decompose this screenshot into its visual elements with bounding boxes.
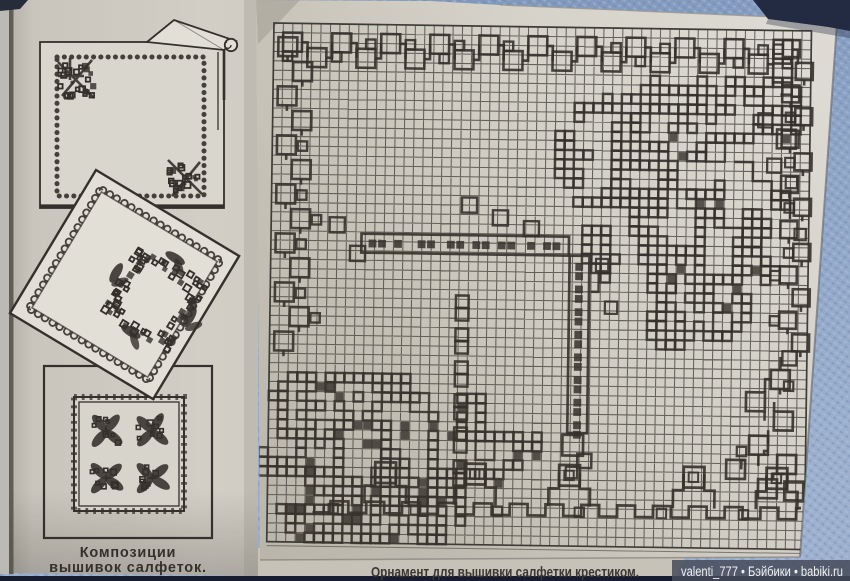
svg-text:вышивок салфеток.: вышивок салфеток. — [49, 560, 207, 576]
svg-text:Орнамент для вышивки салфетки: Орнамент для вышивки салфетки крестиком. — [371, 565, 639, 581]
svg-text:valenti_777 • Бэйбики • babiki: valenti_777 • Бэйбики • babiki.ru — [681, 564, 843, 579]
svg-text:Композиции: Композиции — [80, 545, 177, 561]
